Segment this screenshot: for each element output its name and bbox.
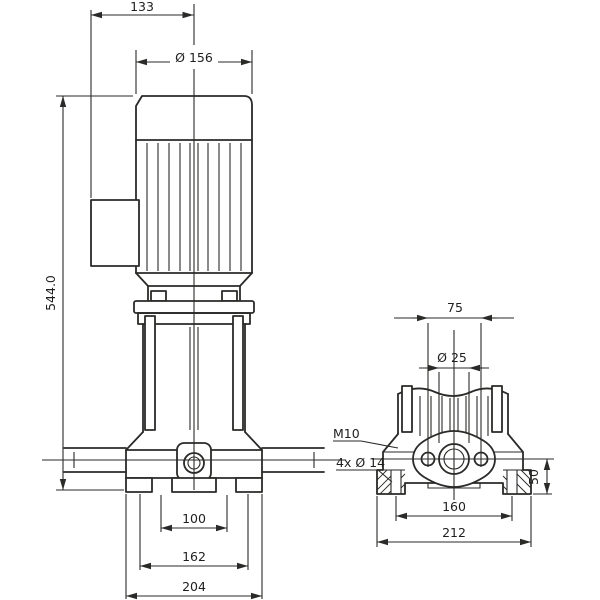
tie-rod-left xyxy=(145,316,155,430)
dim-base-width-side: 212 xyxy=(442,525,466,540)
dim-height: 544.0 xyxy=(43,275,58,311)
dim-port-span: 100 xyxy=(182,511,206,526)
dim-width-top: 133 xyxy=(130,0,154,14)
drawing-canvas: 133 Ø 156 544.0 100 162 204 75 xyxy=(0,0,600,600)
tie-rod-right-side xyxy=(492,386,502,432)
dimensions: 133 Ø 156 544.0 100 162 204 75 xyxy=(43,0,552,599)
pump-dimensional-drawing: 133 Ø 156 544.0 100 162 204 75 xyxy=(0,0,600,600)
foot-right xyxy=(236,478,262,492)
tie-rod-left-side xyxy=(402,386,412,432)
tie-rod-right xyxy=(233,316,243,430)
dim-port-diameter: Ø 25 xyxy=(437,350,467,365)
dim-bolt-span-front: 162 xyxy=(182,549,206,564)
coupling-bolt-left xyxy=(151,291,166,301)
dim-bolt-span-side: 160 xyxy=(442,499,466,514)
label-mounting-holes: 4x Ø 14 xyxy=(336,455,385,470)
dim-port-axis-height: 50 xyxy=(526,469,541,485)
mounting-pad-left xyxy=(377,470,405,494)
label-thread: M10 xyxy=(333,426,360,441)
foot-left xyxy=(126,478,152,492)
coupling-bolt-right xyxy=(222,291,237,301)
dim-base-width-front: 204 xyxy=(182,579,206,594)
dim-motor-diameter: Ø 156 xyxy=(175,50,213,65)
dim-flange-bolt-spacing: 75 xyxy=(447,300,463,315)
terminal-box xyxy=(91,200,139,266)
